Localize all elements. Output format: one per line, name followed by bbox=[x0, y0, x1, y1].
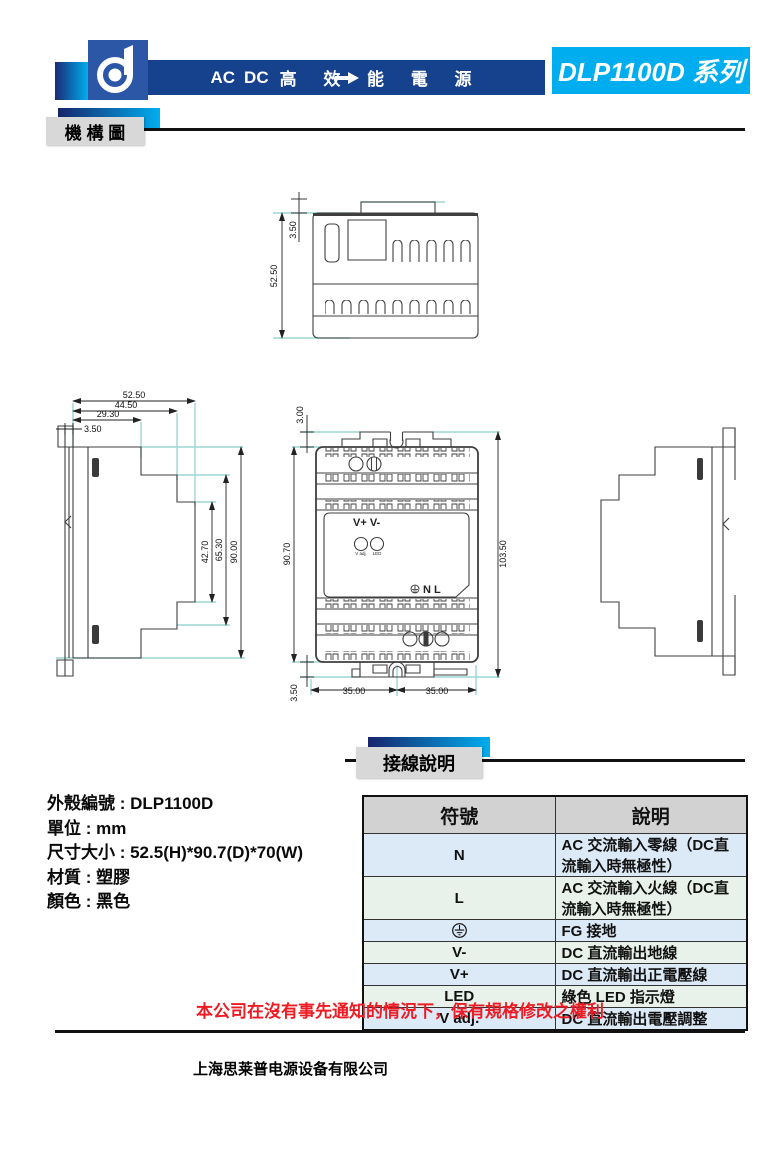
dim-label: 52.50 bbox=[269, 265, 279, 288]
vadj-label: V adj. bbox=[355, 551, 367, 556]
table-row: L AC 交流輸入火線（DC直流輸入時無極性） bbox=[363, 877, 747, 920]
dim-label: 35.00 bbox=[343, 686, 366, 696]
extension-lines bbox=[56, 403, 245, 658]
led-label: LED bbox=[373, 551, 383, 556]
dim-label: 65.30 bbox=[214, 539, 224, 562]
footer-rule bbox=[55, 1030, 745, 1033]
side-profile bbox=[73, 447, 195, 658]
datasheet-page: AC DC 高 效 能 電 源 DLP1100D 系列 機 構 圖 bbox=[0, 0, 782, 1172]
side-profile bbox=[601, 447, 723, 656]
arrow-right-icon bbox=[335, 72, 359, 84]
product-info-line: 顏色 : 黑色 bbox=[47, 890, 303, 915]
dim-label: 90.70 bbox=[282, 543, 292, 566]
title-ac: AC bbox=[210, 68, 235, 88]
dim-label: 90.00 bbox=[229, 541, 239, 564]
product-info-line: 單位 : mm bbox=[47, 817, 303, 842]
vadj-knob bbox=[355, 538, 368, 551]
page-title-bar: AC DC 高 效 能 電 源 bbox=[148, 60, 545, 95]
face-panel bbox=[324, 513, 469, 597]
dim-label: 3.50 bbox=[288, 221, 298, 239]
vent-slot bbox=[697, 458, 703, 480]
title-cjk: 高 效 能 電 源 bbox=[280, 65, 483, 90]
section-title-mechanical: 機 構 圖 bbox=[46, 117, 144, 145]
earth-ground-icon bbox=[451, 922, 468, 939]
product-info-line: 外殼編號 : DLP1100D bbox=[47, 792, 303, 817]
left-side-view-drawing: 52.50 44.50 29.30 3.50 42.70 65.30 90.00 bbox=[38, 388, 293, 688]
vent-slot bbox=[92, 458, 99, 477]
dim-label: 3.50 bbox=[289, 684, 299, 702]
terminal-screw-slotted bbox=[367, 457, 381, 471]
dim-label: 103.50 bbox=[498, 540, 508, 568]
column-header-description: 說明 bbox=[555, 796, 747, 834]
vent-slot bbox=[697, 620, 703, 642]
din-clip bbox=[723, 428, 735, 675]
vent-bands bbox=[316, 448, 478, 660]
output-terminal-label: V+ V- bbox=[353, 517, 381, 529]
column-header-symbol: 符號 bbox=[363, 796, 555, 834]
table-row: N AC 交流輸入零線（DC直流輸入時無極性） bbox=[363, 834, 747, 877]
din-clip-top bbox=[342, 432, 451, 449]
din-clip bbox=[57, 426, 73, 676]
terminal-screw bbox=[403, 632, 417, 646]
top-view-window bbox=[348, 220, 386, 260]
top-view-drawing: 52.50 3.50 bbox=[255, 180, 505, 355]
mechanical-rule bbox=[140, 128, 745, 131]
table-row: V- DC 直流輸出地線 bbox=[363, 942, 747, 964]
dim-label: 3.00 bbox=[295, 406, 305, 424]
product-info-line: 尺寸大小 : 52.5(H)*90.7(D)*70(W) bbox=[47, 841, 303, 866]
dim-label: 35.00 bbox=[426, 686, 449, 696]
din-clip-bottom bbox=[352, 662, 467, 677]
table-header-row: 符號 說明 bbox=[363, 796, 747, 834]
vent-slot bbox=[92, 625, 99, 644]
earth-ground-icon bbox=[411, 585, 419, 593]
product-info-line: 材質 : 塑膠 bbox=[47, 866, 303, 891]
right-side-view-drawing bbox=[585, 420, 770, 710]
led-indicator bbox=[371, 538, 384, 551]
series-badge: DLP1100D 系列 bbox=[552, 47, 750, 94]
rights-notice: 本公司在沒有事先通知的情況下，保有規格修改之權利 bbox=[55, 997, 745, 1022]
title-dc: DC bbox=[244, 68, 269, 88]
dim-label: 52.50 bbox=[123, 390, 146, 400]
product-info: 外殼編號 : DLP1100D 單位 : mm 尺寸大小 : 52.5(H)*9… bbox=[47, 792, 303, 915]
table-row: V+ DC 直流輸出正電壓線 bbox=[363, 964, 747, 986]
terminal-screw bbox=[435, 632, 449, 646]
brand-gradient-bar bbox=[55, 62, 88, 100]
brand-logo bbox=[88, 40, 148, 100]
table-row: FG 接地 bbox=[363, 920, 747, 942]
company-name: 上海思莱普电源设备有限公司 bbox=[193, 1058, 388, 1079]
dim-label: 29.30 bbox=[97, 409, 120, 419]
logo-stem-icon bbox=[124, 45, 133, 75]
top-view-tab bbox=[361, 202, 435, 213]
section-title-wiring: 接線說明 bbox=[356, 747, 482, 778]
wiring-table: 符號 說明 N AC 交流輸入零線（DC直流輸入時無極性） L AC 交流輸入火… bbox=[362, 795, 748, 1031]
front-view-drawing: V+ V- V adj. LED N L bbox=[276, 403, 516, 703]
terminal-screw bbox=[349, 457, 363, 471]
dim-label: 42.70 bbox=[200, 541, 210, 564]
dim-label: 3.50 bbox=[84, 424, 102, 434]
input-terminal-label: N L bbox=[423, 584, 441, 596]
